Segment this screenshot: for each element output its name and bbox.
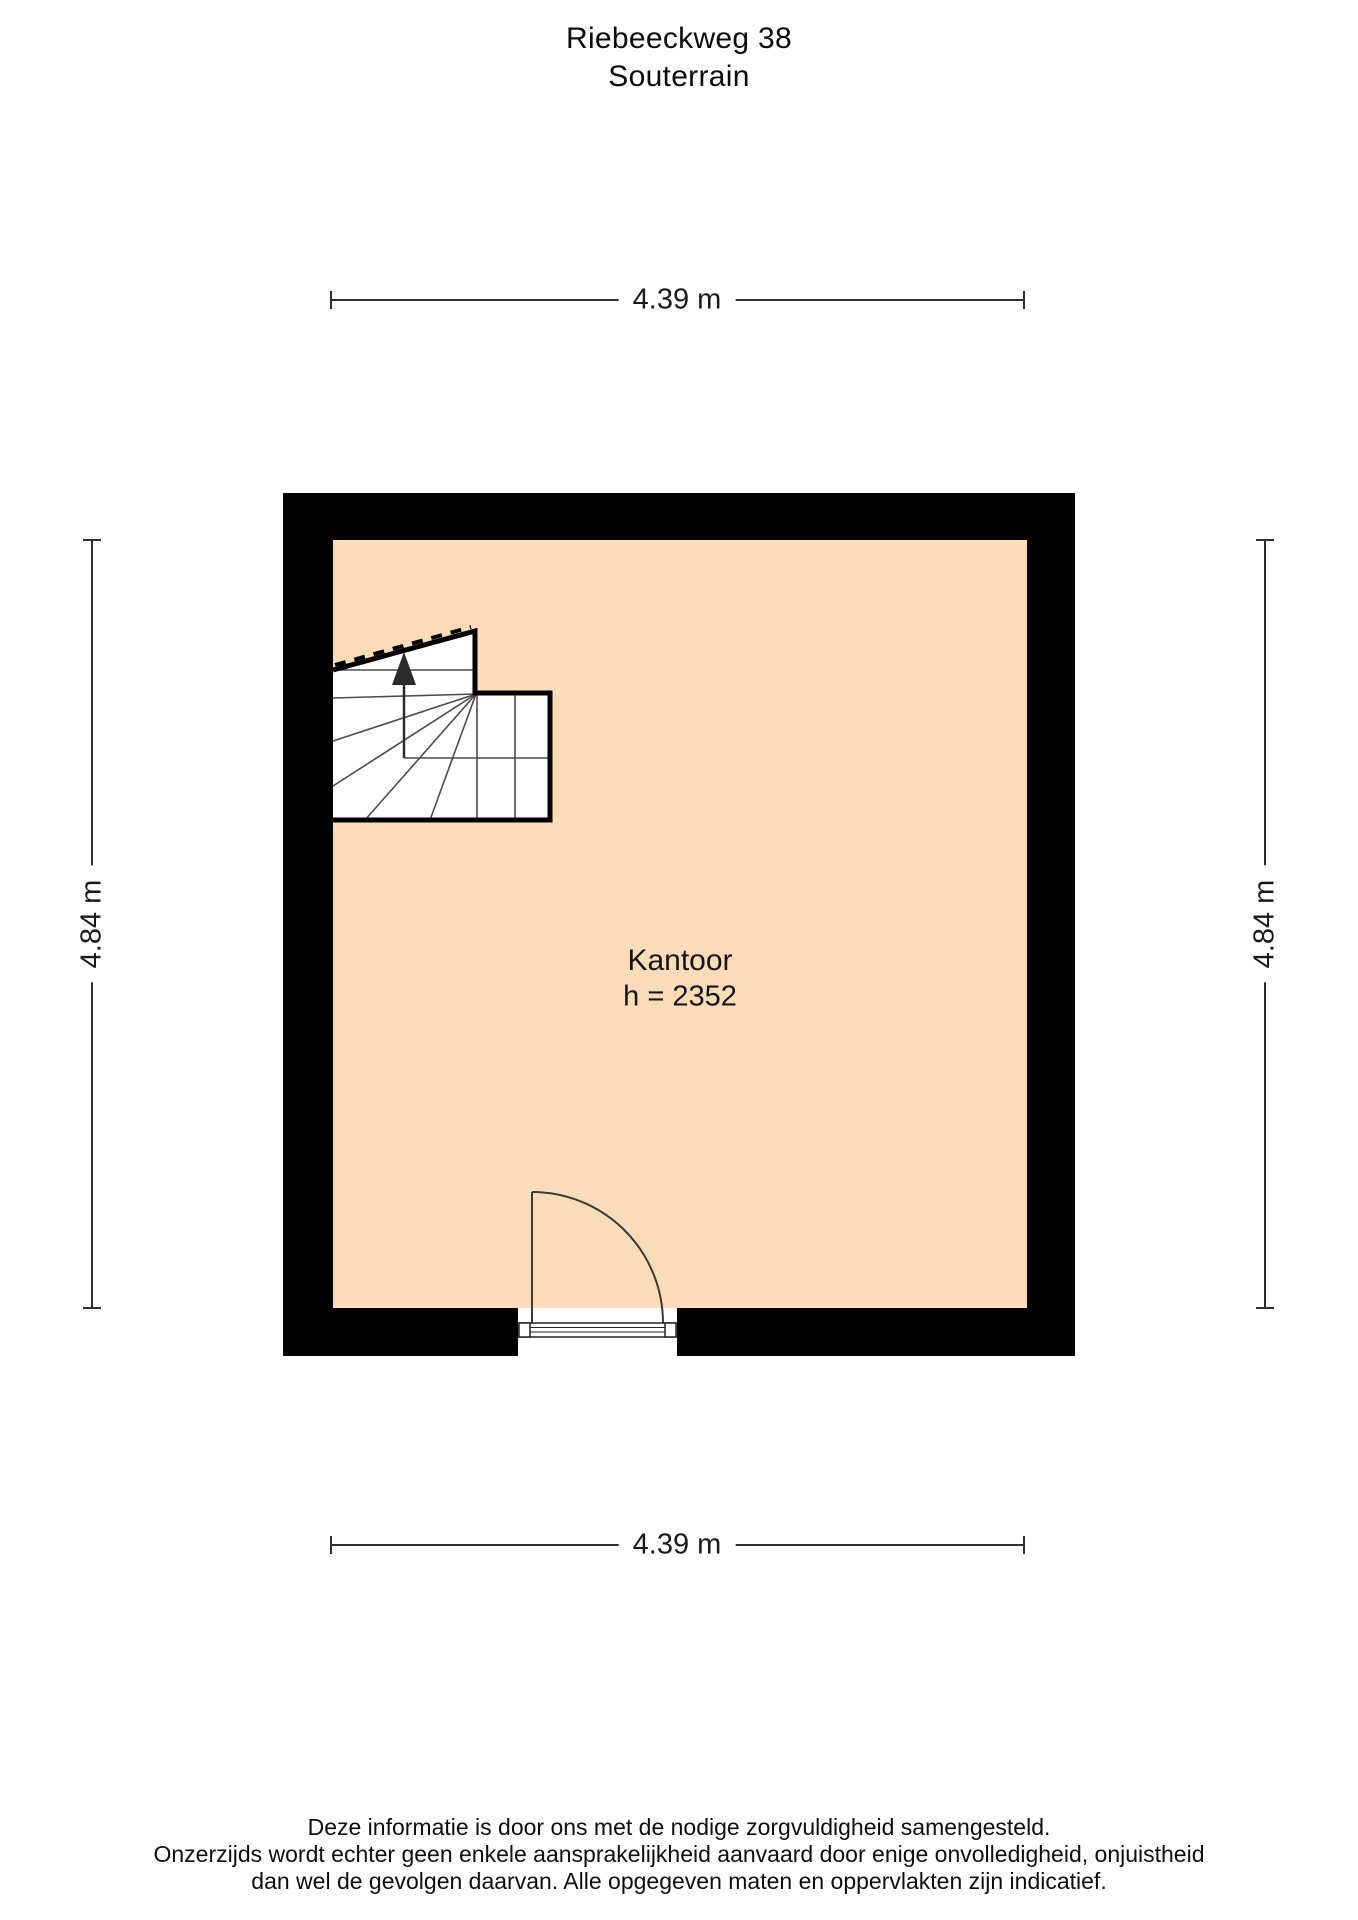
disclaimer-line: dan wel de gevolgen daarvan. Alle opgege… — [0, 1868, 1358, 1895]
disclaimer-line: Deze informatie is door ons met de nodig… — [0, 1814, 1358, 1841]
dimension-label-left: 4.84 m — [76, 866, 109, 983]
door-threshold — [519, 1323, 676, 1337]
dimension-label-right: 4.84 m — [1249, 866, 1282, 983]
dimension-label-top: 4.39 m — [619, 284, 736, 317]
disclaimer-line: Onzerzijds wordt echter geen enkele aans… — [0, 1841, 1358, 1868]
floorplan-page: Riebeeckweg 38 Souterrain — [0, 0, 1358, 1920]
disclaimer-text: Deze informatie is door ons met de nodig… — [0, 1814, 1358, 1895]
room-name-label: Kantoor — [627, 944, 732, 978]
dimension-label-bottom: 4.39 m — [619, 1529, 736, 1562]
room-ceiling-height-label: h = 2352 — [623, 981, 737, 1014]
